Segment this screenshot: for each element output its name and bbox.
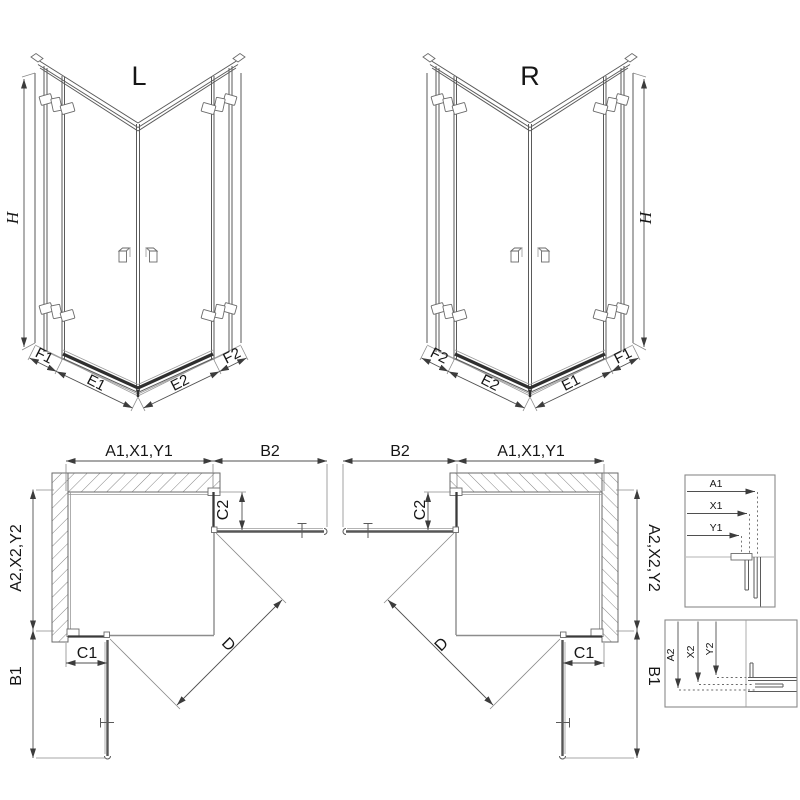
plan-view-left: A1,X1,Y1 B2 A2,X2,Y2 C2 C1 B1 D <box>8 443 327 759</box>
technical-drawing-sheet: L H F1 E1 E2 F2 R H F2 E2 E1 F1 A1,X1,Y1… <box>0 0 800 800</box>
iso-view-right: R H F2 E2 E1 F1 <box>420 54 655 412</box>
detail-box-depth-dims: A2 X2 Y2 <box>665 620 797 707</box>
dim-label-f2-left: F2 <box>220 344 243 367</box>
view-title-left: L <box>131 61 146 91</box>
dim-label-e1-left: E1 <box>84 371 108 394</box>
detail-box-width-dims: A1 X1 Y1 <box>685 475 775 607</box>
plan-right-d-label: D <box>432 635 452 655</box>
detail-a1-label: A1 <box>710 478 723 490</box>
plan-left-width-label: A1,X1,Y1 <box>105 443 173 460</box>
plan-right-depth-label: A2,X2,Y2 <box>645 524 662 592</box>
plan-left-d-label: D <box>218 635 238 655</box>
dim-label-h-right: H <box>636 210 655 225</box>
plan-right-b1-label: B1 <box>645 666 662 686</box>
detail-y1-label: Y1 <box>710 522 723 534</box>
detail-x2-label: X2 <box>685 645 697 658</box>
view-title-right: R <box>520 61 540 91</box>
plan-right-c1-label: C1 <box>574 645 595 662</box>
plan-left-c2-label: C2 <box>215 500 232 521</box>
dim-label-f1-left: F1 <box>32 344 55 367</box>
plan-view-right: B2 A1,X1,Y1 A2,X2,Y2 C2 C1 B1 D <box>343 443 662 759</box>
detail-y2-label: Y2 <box>704 642 716 655</box>
dim-label-e2-left: E2 <box>168 371 192 394</box>
plan-left-b1-label: B1 <box>8 666 25 686</box>
plan-right-width-label: A1,X1,Y1 <box>497 443 565 460</box>
detail-x1-label: X1 <box>710 500 723 512</box>
dim-label-f1-right: F1 <box>611 344 634 367</box>
plan-left-b2-label: B2 <box>260 443 280 460</box>
plan-left-c1-label: C1 <box>77 645 98 662</box>
plan-left-depth-label: A2,X2,Y2 <box>8 524 25 592</box>
dim-label-h-left: H <box>3 210 22 225</box>
dim-label-f2-right: F2 <box>427 344 450 367</box>
plan-right-c2-label: C2 <box>412 500 429 521</box>
plan-right-b2-label: B2 <box>390 443 410 460</box>
shower-enclosure-drawing: L H F1 E1 E2 F2 R H F2 E2 E1 F1 A1,X1,Y1… <box>0 0 800 800</box>
detail-a2-label: A2 <box>665 648 677 661</box>
iso-view-left: L H F1 E1 E2 F2 <box>3 54 248 412</box>
